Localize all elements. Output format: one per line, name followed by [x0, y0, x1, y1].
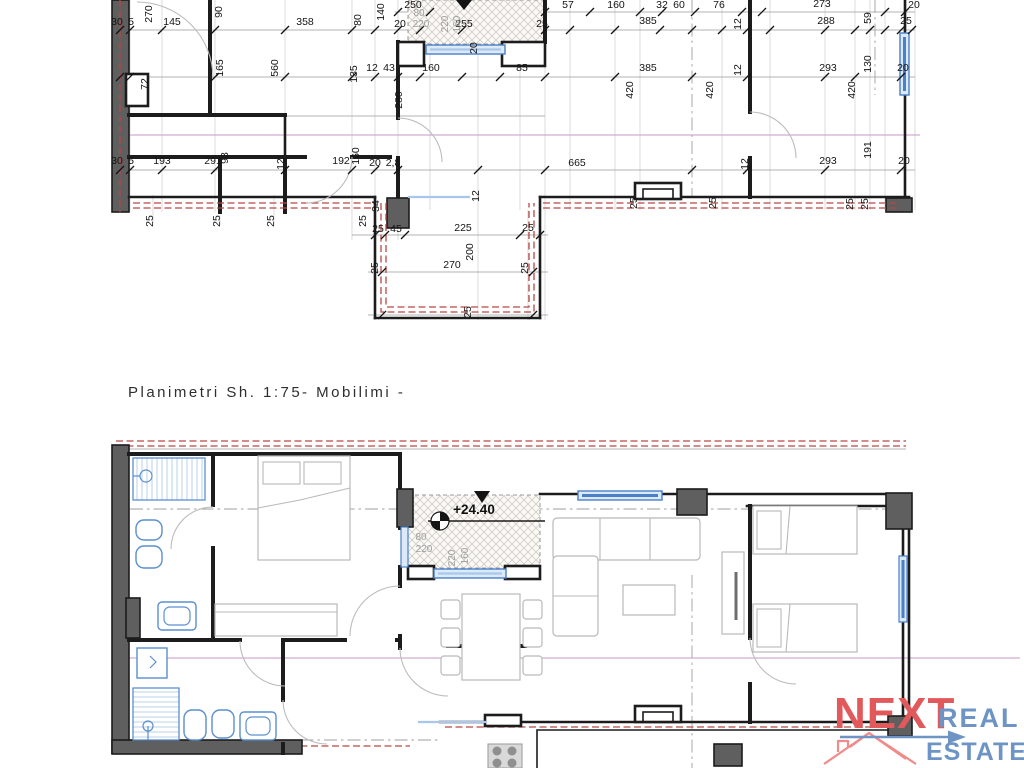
dimension-label: 145 [163, 16, 181, 28]
dimension-label: 560 [269, 59, 281, 77]
dimension-label: 25 [211, 215, 223, 227]
bathroom-fixtures [133, 458, 276, 740]
dimension-label: 220 [416, 544, 433, 555]
tv-cabinet [722, 552, 744, 634]
dimension-label: 80 [413, 8, 425, 19]
dimension-label: 293 [819, 155, 837, 167]
dimension-label: 20 [468, 42, 480, 54]
dimension-label: 25 [462, 306, 474, 318]
wall-pier [485, 715, 521, 726]
wall-column [677, 489, 707, 515]
sink [240, 712, 276, 740]
dimension-label: 30 [111, 16, 123, 28]
logo-text-real: REAL [938, 703, 1020, 733]
upper-plan: 3052701459035880140250202552557160326076… [111, 0, 920, 320]
dimension-label: 193 [153, 155, 171, 167]
plan-title-variant: - Mobilimi - [302, 384, 405, 401]
door-threshold [635, 706, 681, 722]
dimension-label: 191 [862, 141, 874, 159]
dimension-label: 273 [813, 0, 831, 10]
dimension-label: 12 [732, 18, 744, 30]
dimension-label: 25 [844, 198, 856, 210]
dimension-label: 140 [375, 3, 387, 21]
wall-column [714, 744, 742, 766]
dimension-label: 385 [639, 62, 657, 74]
dimension-label: 60 [673, 0, 685, 11]
dimension-label: 358 [296, 16, 314, 28]
page: 3052701459035880140250202552557160326076… [0, 0, 1024, 768]
dimension-label: 93 [219, 152, 231, 164]
dimension-label: 25 [265, 215, 277, 227]
dimension-label: 160 [422, 62, 440, 74]
dimension-label: 25 [372, 223, 384, 235]
dimension-label: 12 [366, 62, 378, 74]
dimension-label: 5 [128, 16, 134, 28]
dimension-label: 160 [452, 15, 463, 32]
dimension-label: 220 [447, 549, 458, 566]
dimension-label: 76 [713, 0, 725, 11]
dimension-label: 293 [819, 62, 837, 74]
door-jamb [505, 566, 540, 579]
dimension-label: 45 [390, 223, 402, 235]
floor-plan-sheet: 3052701459035880140250202552557160326076… [0, 0, 1024, 768]
dining-set [441, 594, 542, 680]
walls [112, 0, 912, 318]
dimension-label: 25 [519, 262, 531, 274]
dimension-label: +24.40 [453, 502, 495, 517]
toilet [184, 710, 206, 740]
dimension-label: 80 [415, 532, 427, 543]
dimension-label: 385 [639, 15, 657, 27]
bidet [212, 710, 234, 738]
dimension-label: 270 [443, 259, 461, 271]
door-threshold [635, 183, 681, 199]
dimension-label: 420 [704, 81, 716, 99]
window [401, 527, 408, 567]
door-jamb [398, 42, 424, 66]
stove [488, 744, 522, 768]
brand-logo: NEXT REAL ESTATE [824, 689, 1024, 766]
dimension-label: 130 [862, 55, 874, 73]
dimension-label: 220 [440, 15, 451, 32]
dimension-label: 165 [214, 59, 226, 77]
dimension-label: 90 [213, 6, 225, 18]
door-jamb [408, 566, 434, 579]
plan-title: Planimetri Sh. 1:75 - Mobilimi - [128, 384, 405, 401]
double-bed [258, 456, 350, 560]
sink [158, 602, 196, 630]
sofa [553, 518, 700, 636]
dimension-label: 160 [460, 547, 471, 564]
dimension-label: 43 [383, 62, 395, 74]
dimension-label: 30 [111, 155, 123, 167]
single-bed [753, 604, 857, 652]
wall-column [886, 198, 912, 212]
dimension-label: 225 [454, 222, 472, 234]
dimension-label: 288 [817, 15, 835, 27]
dimension-label: 200 [464, 243, 476, 261]
dimension-label: 270 [143, 5, 155, 23]
dimension-label: 20 [898, 155, 910, 167]
dimension-label: 20 [897, 62, 909, 74]
dimension-label: 420 [846, 81, 858, 99]
dimension-label: 25 [707, 197, 719, 209]
bidet [136, 520, 162, 540]
shower [133, 458, 205, 500]
dimension-label: 2,8 [386, 157, 401, 169]
dimension-label: 57 [562, 0, 574, 11]
washing-machine [137, 648, 167, 678]
dimension-label: 32 [656, 0, 668, 11]
dimension-label: 25 [144, 215, 156, 227]
dimension-label: 72 [139, 78, 151, 90]
wall-column [886, 493, 912, 529]
dimension-label: 420 [624, 81, 636, 99]
dimension-label: 12 [739, 158, 751, 170]
plan-title-scale: Planimetri Sh. 1:75 [128, 384, 302, 401]
dimension-label: 665 [568, 157, 586, 169]
dimension-label: 135 [348, 65, 360, 83]
dimension-label: 160 [350, 147, 362, 165]
single-bed [753, 506, 857, 554]
wall-stub [126, 598, 140, 638]
dimension-label: 12 [275, 158, 287, 170]
dimension-label: 25 [859, 198, 871, 210]
dimension-label: 20 [369, 157, 381, 169]
dimension-label: 20 [394, 18, 406, 30]
dimension-label: 34 [370, 200, 382, 212]
dimension-label: 25 [357, 215, 369, 227]
dimension-label: 20 [908, 0, 920, 11]
dimension-label: 280 [393, 91, 405, 109]
dimension-label: 160 [607, 0, 625, 11]
dimension-label: 25 [522, 222, 534, 234]
wardrobe [215, 604, 337, 636]
exterior-wall-bottom [112, 740, 302, 754]
toilet [136, 546, 162, 568]
dimension-label: 85 [516, 62, 528, 74]
dimension-label: 5 [128, 155, 134, 167]
shower [133, 688, 179, 740]
dimension-label: 12 [732, 64, 744, 76]
dimension-label: 12 [470, 190, 482, 202]
dimension-label: 192 [332, 155, 350, 167]
dimension-label: 25 [628, 197, 640, 209]
dimension-label: 220 [413, 19, 430, 30]
dimension-label: 25 [536, 18, 548, 30]
dimension-label: 25 [900, 15, 912, 27]
dimension-label: 80 [352, 14, 364, 26]
windows [408, 33, 909, 197]
wall-column [397, 489, 413, 527]
logo-text-estate: ESTATE [926, 738, 1024, 766]
dimension-label: 25 [369, 262, 381, 274]
dimension-label: 59 [862, 12, 874, 24]
coffee-table [623, 585, 675, 615]
